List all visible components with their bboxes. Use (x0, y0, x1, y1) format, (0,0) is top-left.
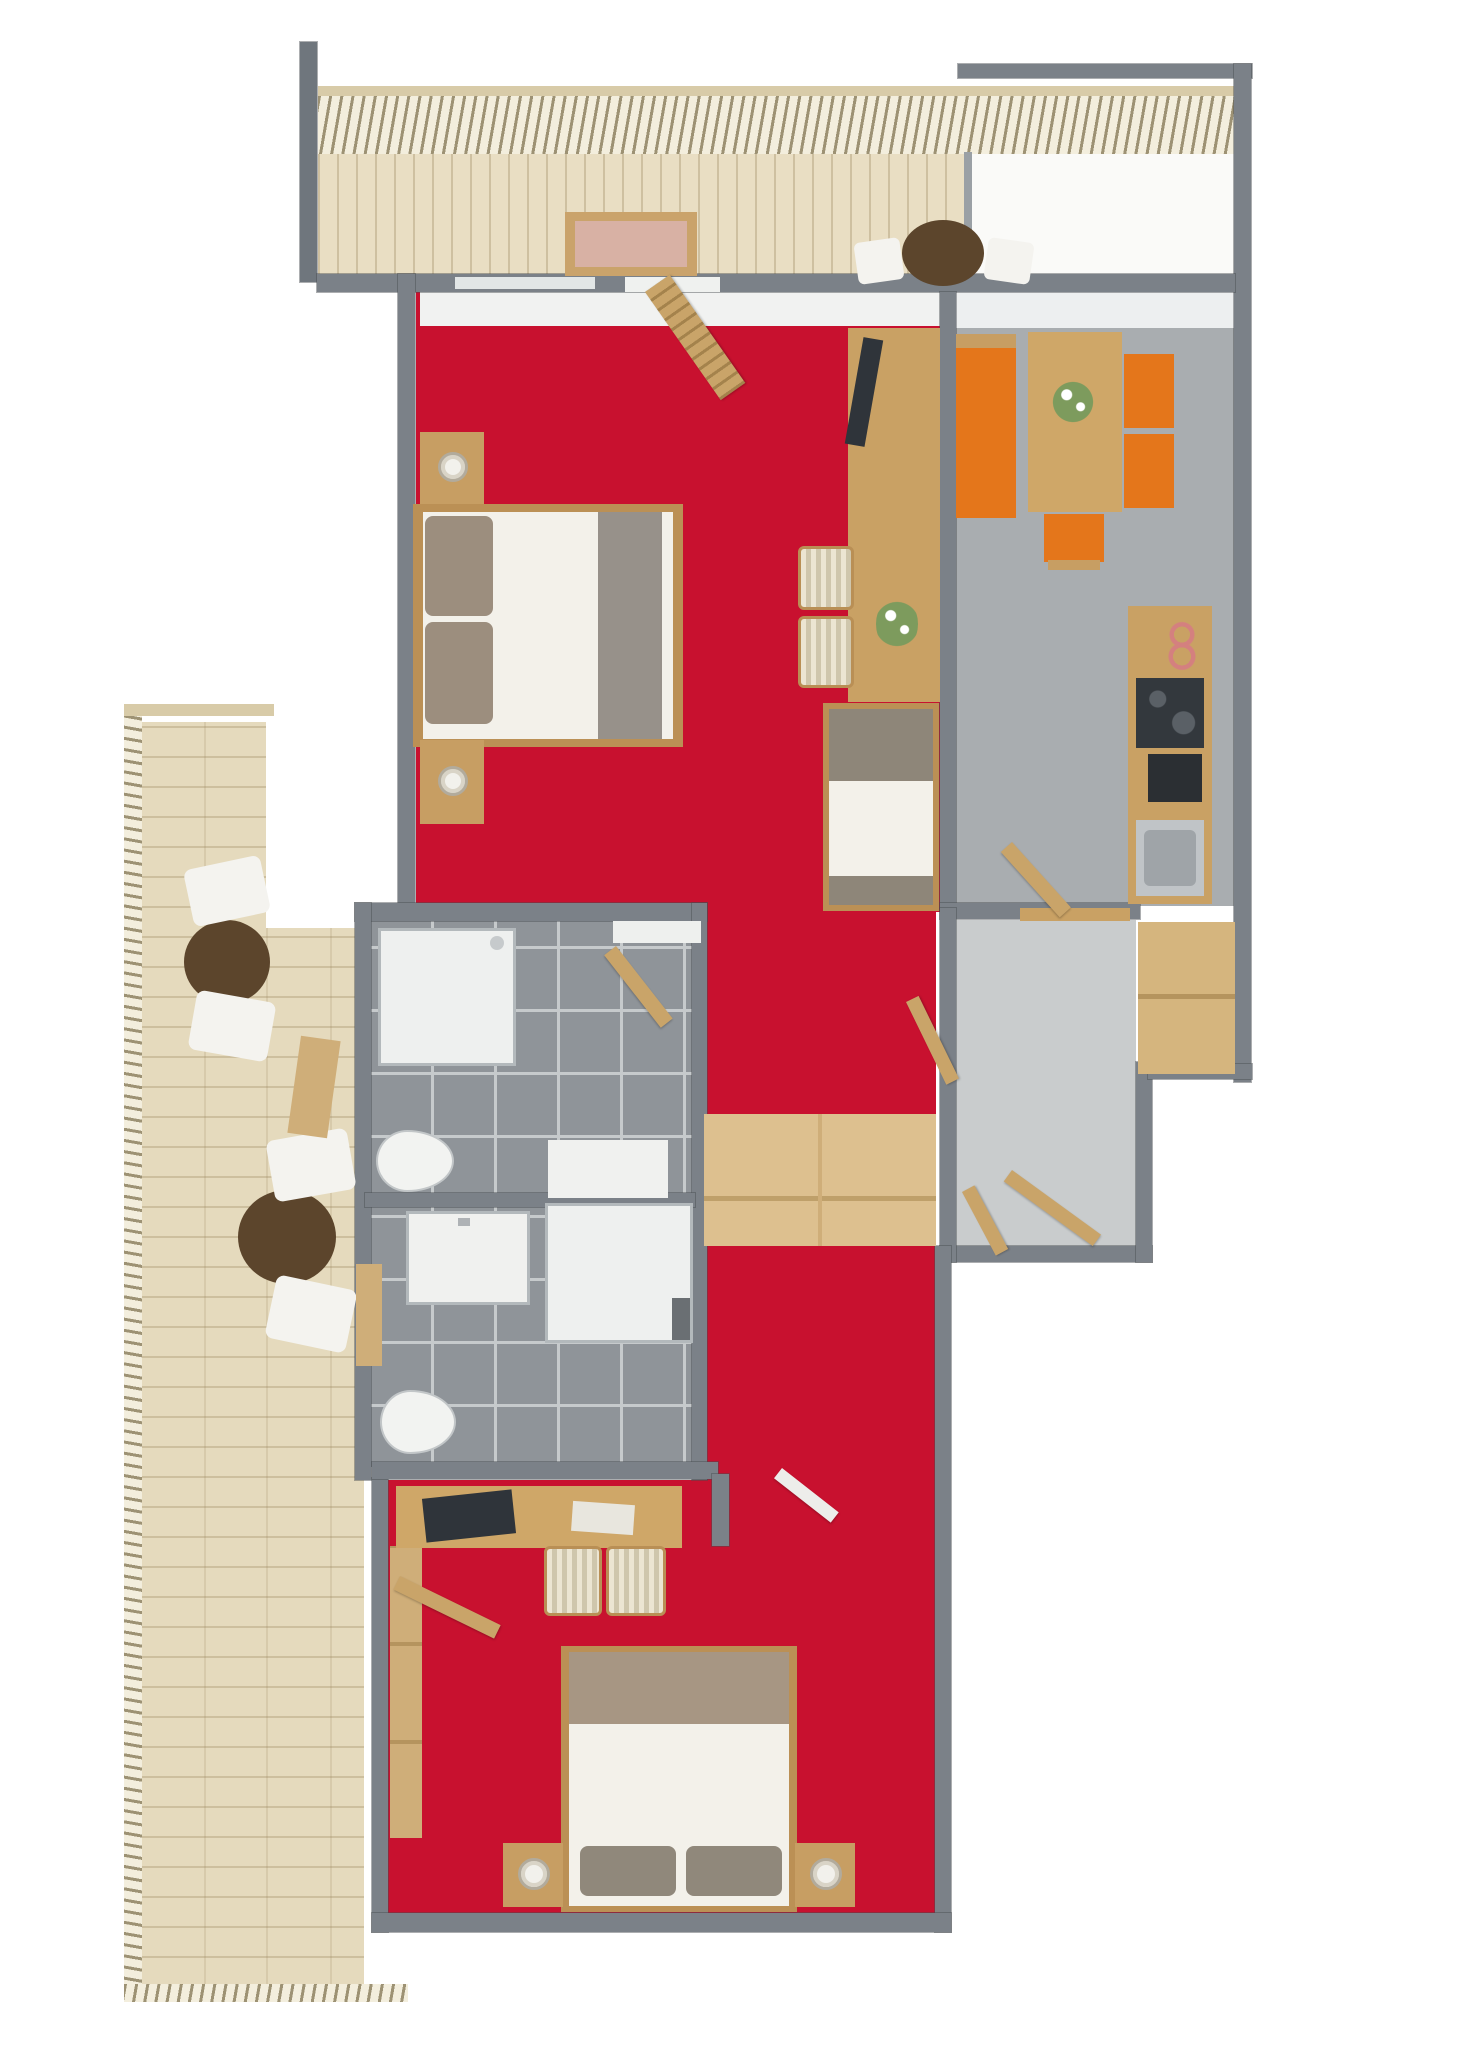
bedroom1-lamp-top (438, 452, 468, 482)
bedroom2-chair-1 (544, 1546, 602, 1616)
desk-papers (571, 1501, 635, 1535)
terrace-table-upper (184, 920, 270, 1004)
bedroom2-lamp-right (810, 1858, 842, 1890)
bedroom2-top-wall (372, 1462, 718, 1479)
balcony-chair-left (853, 237, 904, 285)
single-bed-pillow (829, 709, 933, 781)
apartment-3d-floor-plan (0, 0, 1475, 2048)
dining-chair-2 (1124, 434, 1174, 508)
desk-chair-1 (798, 546, 854, 610)
dining-stool (1044, 514, 1104, 562)
bathroom2-shower-mark (672, 1298, 690, 1340)
balcony-railing (318, 96, 1235, 154)
dining-chair-1 (1124, 354, 1174, 428)
bedroom2-lamp-left (518, 1858, 550, 1890)
bedroom2-pillow-2 (686, 1846, 782, 1896)
terrace-rail-left (124, 710, 142, 2002)
bedroom2-left-wall (372, 1478, 388, 1932)
desk-laptop (422, 1489, 516, 1542)
dining-stool-legs (1048, 560, 1100, 570)
bedroom2-blanket (569, 1652, 789, 1724)
top-left-tall-wall (300, 42, 317, 282)
bedroom1-lamp-bottom (438, 766, 468, 796)
bedroom1-pillow-1 (425, 516, 493, 616)
bedroom2-bottom-wall (372, 1913, 951, 1932)
corridor-wardrobe-seam-v (818, 1114, 822, 1246)
dining-bench (956, 348, 1016, 518)
bathroom2-shower (545, 1203, 693, 1343)
bedroom2-wall-stub (712, 1474, 729, 1546)
balcony-window-panel-glass (575, 221, 687, 267)
dining-bench-top-edge (956, 334, 1016, 348)
living-dining-wall (940, 292, 956, 908)
desk-chair-2 (798, 616, 854, 688)
right-outer-wall (1234, 64, 1251, 1082)
hall-console (1020, 908, 1130, 921)
kitchen-sink-basin (1144, 830, 1196, 886)
kitchen-cooktop (1136, 678, 1204, 748)
desk-flowers (876, 596, 918, 652)
bedroom1-window-sill (455, 277, 595, 289)
terrace-plank-item-2 (356, 1264, 382, 1366)
kitchen-oven (1148, 754, 1202, 802)
terrace-rail-top (124, 704, 274, 716)
terrace-rail-bottom (124, 1984, 408, 2002)
floor-plan-screenshot (0, 0, 1475, 2048)
bedroom1-blanket (598, 512, 662, 739)
bedroom1-pillow-2 (425, 622, 493, 724)
bathroom1-door-threshold (613, 921, 701, 943)
shower1-head (490, 936, 504, 950)
kitchen-decor-rings (1158, 620, 1206, 672)
bathroom-left-wall (355, 903, 371, 1480)
top-right-wall (958, 64, 1252, 78)
balcony-table (902, 220, 984, 286)
bedroom2-right-wall (935, 1246, 951, 1932)
hall-right-lower-wall (1136, 1062, 1152, 1262)
terrace-table-lower (238, 1190, 336, 1284)
bathroom2-faucet (458, 1218, 470, 1226)
single-bed-blanket (829, 876, 933, 905)
bedroom2-pillow-1 (580, 1846, 676, 1896)
bedroom2-chair-2 (606, 1546, 666, 1616)
hall-closet-seam (1138, 994, 1235, 999)
bathroom-top-wall (355, 903, 707, 921)
bathroom1-mat (548, 1140, 668, 1198)
dining-flowers (1052, 378, 1094, 426)
diningroom-window-light (956, 292, 1234, 328)
corridor-hall-wall (940, 908, 956, 1262)
hall-bottom-wall (940, 1246, 1152, 1262)
balcony-chair-right (983, 237, 1034, 285)
